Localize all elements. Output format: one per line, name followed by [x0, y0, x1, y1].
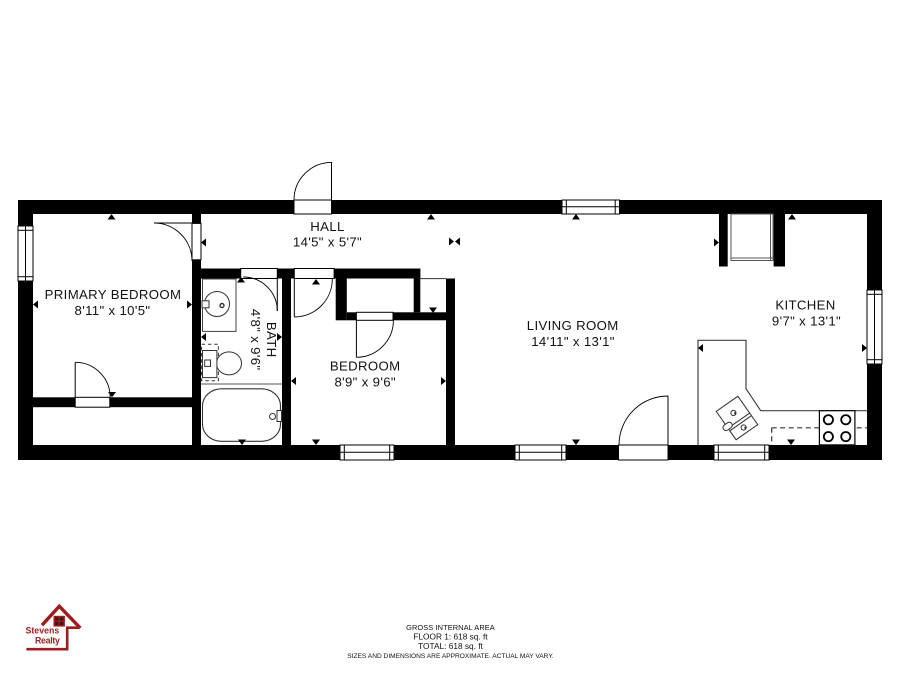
svg-text:Stevens: Stevens: [26, 626, 60, 636]
svg-text:Realty: Realty: [35, 636, 60, 646]
svg-text:KITCHEN: KITCHEN: [775, 298, 835, 313]
svg-text:TOTAL: 618 sq. ft: TOTAL: 618 sq. ft: [418, 641, 483, 651]
svg-text:SIZES AND DIMENSIONS ARE APPRO: SIZES AND DIMENSIONS ARE APPROXIMATE. AC…: [347, 653, 554, 660]
svg-text:9'7" x 13'1": 9'7" x 13'1": [772, 314, 841, 329]
svg-text:8'9" x 9'6": 8'9" x 9'6": [334, 375, 396, 390]
svg-text:BEDROOM: BEDROOM: [330, 359, 401, 374]
svg-text:4'8" x 9'6": 4'8" x 9'6": [248, 309, 263, 371]
svg-text:PRIMARY BEDROOM: PRIMARY BEDROOM: [45, 287, 182, 302]
svg-text:14'11" x 13'1": 14'11" x 13'1": [531, 334, 615, 349]
svg-text:LIVING ROOM: LIVING ROOM: [527, 318, 619, 333]
svg-text:FLOOR 1: 618 sq. ft: FLOOR 1: 618 sq. ft: [413, 632, 488, 642]
svg-text:14'5" x 5'7": 14'5" x 5'7": [293, 235, 362, 250]
svg-text:8'11" x 10'5": 8'11" x 10'5": [75, 303, 151, 318]
svg-text:BATH: BATH: [264, 322, 279, 358]
svg-text:HALL: HALL: [310, 219, 344, 234]
